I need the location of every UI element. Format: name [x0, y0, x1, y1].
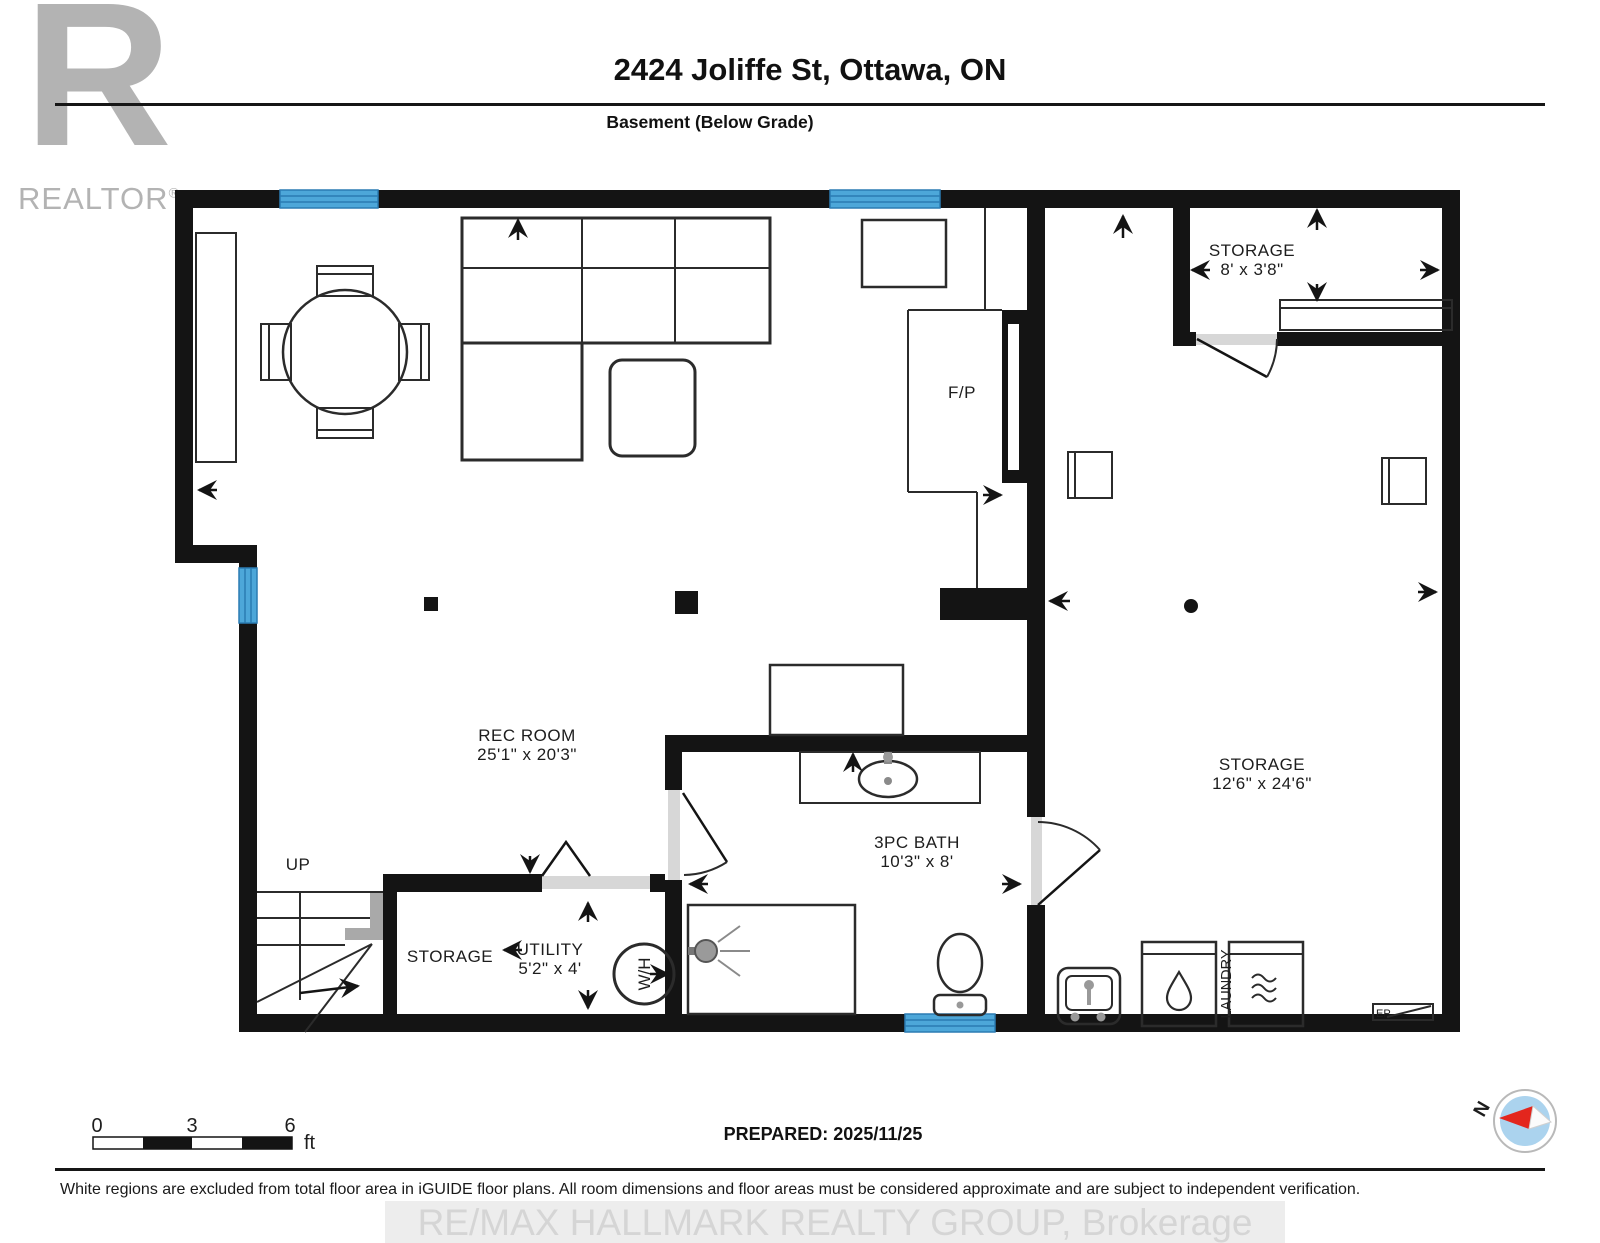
wall-bottom — [239, 1014, 1460, 1032]
doors — [542, 334, 1277, 905]
storage-room-items — [1068, 300, 1452, 613]
stairs-direction-arrow — [300, 986, 358, 993]
window-top-left — [280, 190, 378, 208]
shower — [688, 905, 855, 1014]
stairs-up-label: UP — [286, 855, 311, 874]
wall-storage-bottom-a — [1173, 332, 1196, 346]
room-dims: 8' x 3'8" — [1220, 260, 1283, 279]
floor-plan-drawing: W/H LAUNDRY — [0, 0, 1600, 1243]
bathroom-fixtures — [688, 752, 986, 1015]
dining-table — [261, 266, 429, 438]
toilet — [934, 934, 986, 1015]
window-left — [239, 568, 257, 623]
wall-utility-top-b — [650, 874, 665, 892]
sideboard — [196, 233, 236, 462]
room-label-storage-under-stairs: STORAGE — [407, 947, 493, 966]
brokerage-watermark: RE/MAX HALLMARK REALTY GROUP, Brokerage — [418, 1202, 1253, 1243]
room-label-bath: 3PC BATH 10'3" x 8' — [874, 833, 960, 871]
room-label-utility: UTILITY 5'2" x 4' — [517, 940, 584, 978]
window-top-right — [830, 190, 940, 208]
desk — [770, 665, 903, 735]
brokerage-watermark-band: RE/MAX HALLMARK REALTY GROUP, Brokerage — [385, 1201, 1285, 1243]
door-slab — [1196, 334, 1277, 345]
vanity-sink — [800, 752, 980, 803]
stairs — [257, 892, 383, 1032]
room-label-storage-top: STORAGE 8' x 3'8" — [1209, 241, 1295, 279]
stairs-handrail-h — [345, 928, 383, 940]
heat-waves-icon — [1252, 975, 1276, 1002]
room-dims: 5'2" x 4' — [518, 959, 581, 978]
support-post — [1184, 599, 1198, 613]
room-name: STORAGE — [1219, 755, 1305, 774]
fireplace-slot — [1008, 324, 1019, 470]
compass: N — [1470, 1090, 1556, 1152]
sofa-chaise — [462, 343, 582, 460]
room-name: 3PC BATH — [874, 833, 960, 852]
room-name: UTILITY — [517, 940, 584, 959]
wall-stub — [940, 588, 1027, 620]
scale-bar: 0 3 6 ft — [91, 1115, 315, 1154]
fireplace-label: F/P — [948, 383, 976, 402]
wall-center-upper — [1027, 208, 1045, 817]
windows — [239, 190, 995, 1032]
prepared-date: PREPARED: 2025/11/25 — [724, 1124, 923, 1145]
washer — [1142, 942, 1216, 1026]
dryer — [1229, 942, 1303, 1026]
wall-storage-bottom-b — [1277, 332, 1460, 346]
sectional-sofa — [462, 218, 770, 460]
column-large — [675, 591, 698, 614]
laundry-label: LAUNDRY — [1219, 949, 1235, 1018]
rec-room-furniture — [196, 218, 946, 735]
door-utility-bifold — [542, 842, 650, 889]
door-storage-top — [1196, 334, 1277, 377]
room-label-storage-right: STORAGE 12'6" x 24'6" — [1212, 755, 1312, 793]
column-small — [424, 597, 438, 611]
scale-tick-3: 3 — [186, 1115, 197, 1137]
room-labels: REC ROOM 25'1" x 20'3" STORAGE 8' x 3'8"… — [286, 241, 1312, 978]
room-dims: 25'1" x 20'3" — [477, 745, 577, 764]
side-table — [862, 220, 946, 287]
disclaimer-text: White regions are excluded from total fl… — [60, 1181, 1570, 1199]
footer-divider — [55, 1168, 1545, 1171]
window-bottom — [905, 1014, 995, 1032]
door-rec-to-bath — [668, 790, 727, 880]
chair-bottom — [317, 408, 373, 438]
wall-utility-top-a — [383, 874, 542, 892]
water-drop-icon — [1167, 972, 1191, 1010]
door-bath-to-storage — [1031, 817, 1100, 905]
wall-storage-left — [1173, 208, 1190, 332]
shower-head-icon — [695, 940, 717, 962]
room-name: REC ROOM — [478, 726, 576, 745]
wall-bath-left-a — [665, 752, 682, 790]
wall-center-lower — [1027, 905, 1045, 1014]
room-dims: 12'6" x 24'6" — [1212, 774, 1312, 793]
room-label-rec-room: REC ROOM 25'1" x 20'3" — [477, 726, 577, 764]
door-slab — [1031, 817, 1042, 905]
floor-plan-page: R REALTOR® 2424 Joliffe St, Ottawa, ON B… — [0, 0, 1600, 1243]
room-name: STORAGE — [1209, 241, 1295, 260]
scale-tick-6: 6 — [284, 1115, 295, 1137]
ottoman — [610, 360, 695, 456]
door-slab — [668, 790, 680, 880]
scale-unit: ft — [304, 1132, 316, 1154]
wall-bath-top — [665, 735, 1027, 752]
storage-shelf — [1280, 300, 1452, 330]
wall-left-upper — [175, 190, 193, 563]
door-slab — [542, 876, 650, 889]
compass-n-label: N — [1470, 1098, 1495, 1120]
wall-stairs-right — [383, 892, 397, 1032]
room-dims: 10'3" x 8' — [880, 852, 953, 871]
chair-top — [317, 266, 373, 296]
scale-tick-0: 0 — [91, 1115, 102, 1137]
ep-label: EP — [1376, 1008, 1391, 1020]
